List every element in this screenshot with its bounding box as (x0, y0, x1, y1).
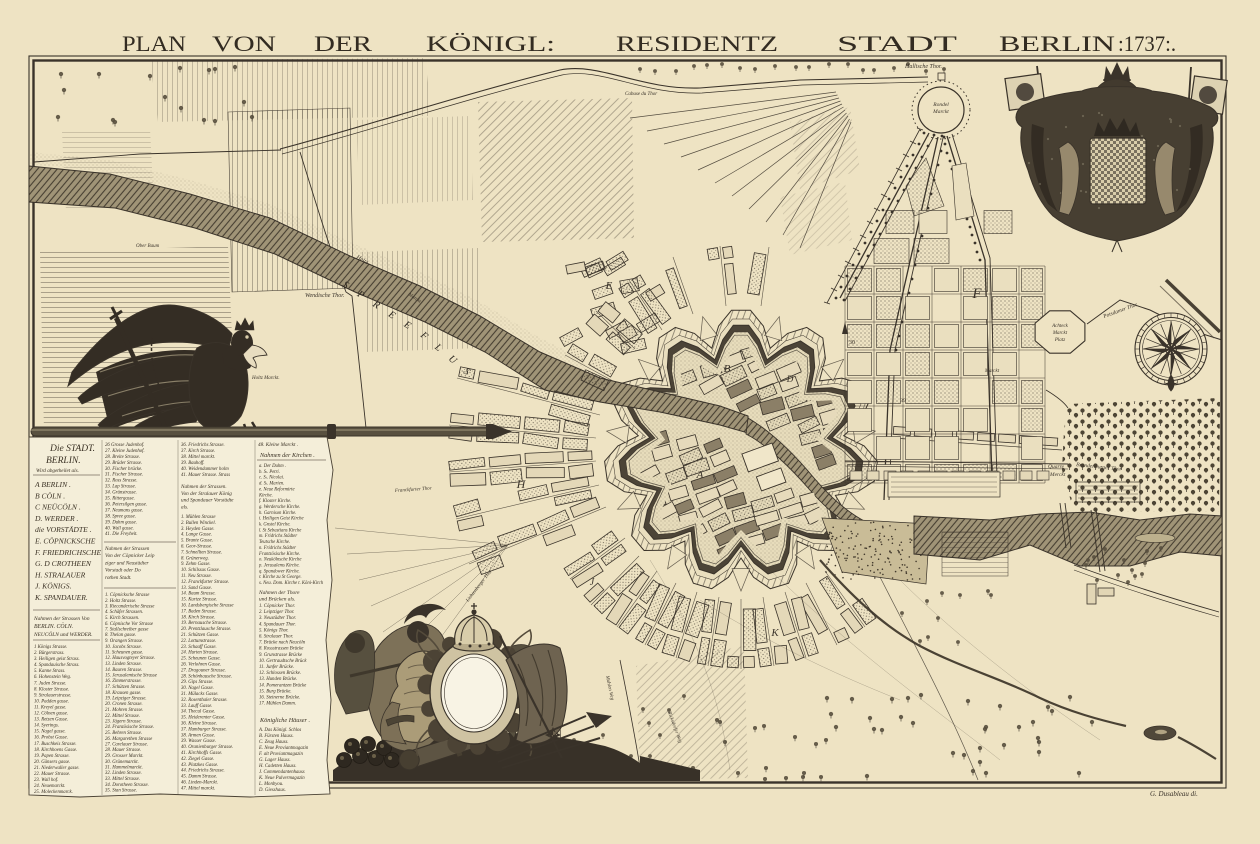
svg-text:NEUCÖLN und WERDER.: NEUCÖLN und WERDER. (33, 630, 93, 638)
svg-text:H. Cadetten Hauss.: H. Cadetten Hauss. (258, 764, 297, 769)
svg-text:3. Heiligen geist Strass.: 3. Heiligen geist Strass. (34, 657, 80, 662)
svg-text:19. Leipziger Strasse.: 19. Leipziger Strasse. (105, 697, 147, 702)
svg-text:2. Holtz Strasse.: 2. Holtz Strasse. (105, 599, 136, 604)
svg-text:8. Rossstrassen Brücke: 8. Rossstrassen Brücke (259, 647, 304, 652)
svg-text:6. Cöpnische Vor Strasse: 6. Cöpnische Vor Strasse (105, 622, 154, 627)
svg-text:ziger und Neustädter: ziger und Neustädter (104, 560, 149, 566)
svg-text:2. Bullen Winckel.: 2. Bullen Winckel. (181, 521, 216, 526)
svg-text:h. Garnison Kirche.: h. Garnison Kirche. (259, 511, 296, 516)
svg-text:G. Dusableau di.: G. Dusableau di. (1150, 790, 1198, 798)
svg-text:Von der Stralauer König: Von der Stralauer König (181, 491, 232, 497)
svg-text:RESIDENTZ: RESIDENTZ (616, 31, 778, 56)
svg-text:E. Neue Proviantmagazin: E. Neue Proviantmagazin (258, 746, 309, 751)
svg-text:16. Steinerne Brücke.: 16. Steinerne Brücke. (259, 696, 300, 701)
svg-text:m. Fridrichs Städter: m. Fridrichs Städter (259, 534, 297, 539)
svg-text:30: 30 (849, 340, 855, 346)
svg-text:BERLIN: BERLIN (999, 31, 1115, 56)
svg-text:31. Fischer Strasse.: 31. Fischer Strasse. (105, 473, 143, 478)
svg-text:K. SPANDAUER.: K. SPANDAUER. (34, 593, 88, 602)
svg-text:3. Riecanderische Strasse: 3. Riecanderische Strasse (105, 605, 155, 610)
svg-text:Die STADT.: Die STADT. (49, 444, 95, 454)
svg-text:G. Lager Hauss.: G. Lager Hauss. (259, 758, 291, 763)
svg-text:34. Thecul Gasse.: 34. Thecul Gasse. (181, 710, 215, 715)
svg-text:26. Margarethen Strasse: 26. Margarethen Strasse (105, 737, 153, 742)
svg-text:37. Hamburger Strasse.: 37. Hamburger Strasse. (181, 727, 227, 732)
svg-text:16. Probst Gasse.: 16. Probst Gasse. (34, 736, 68, 741)
svg-text:30. Fischer brücke.: 30. Fischer brücke. (105, 467, 142, 472)
svg-text:1. Cöpnicksche Strasse: 1. Cöpnicksche Strasse (105, 593, 150, 598)
svg-text:39. Wasser Gasse.: 39. Wasser Gasse. (181, 739, 216, 744)
svg-text:18. Krausen gasse.: 18. Krausen gasse. (105, 691, 142, 696)
svg-text:19. Bernausche Strasse.: 19. Bernausche Strasse. (181, 621, 227, 626)
svg-text:Platz: Platz (1054, 338, 1065, 343)
svg-text:25. Scheunen Gasse.: 25. Scheunen Gasse. (181, 657, 221, 662)
svg-text:27. Dragouner Strasse.: 27. Dragouner Strasse. (181, 668, 226, 673)
svg-text:23. Schaaff Gasse.: 23. Schaaff Gasse. (181, 645, 217, 650)
svg-text:34. Dorotheen Strasse.: 34. Dorotheen Strasse. (105, 783, 149, 788)
svg-text:41. Mauer Strasse. Strass: 41. Mauer Strasse. Strass (181, 473, 230, 478)
svg-text:36. Petersilgen gasse.: 36. Petersilgen gasse. (105, 503, 147, 508)
svg-text:VON: VON (212, 31, 276, 56)
svg-text:KÖNIGL:: KÖNIGL: (426, 31, 555, 56)
svg-text:48. Kleine Marckt .: 48. Kleine Marckt . (258, 441, 298, 448)
svg-text:Marckt: Marckt (984, 369, 1000, 374)
svg-text:2. Leiptziger Thor.: 2. Leiptziger Thor. (259, 610, 294, 615)
svg-text:44. Friedrichs Strasse.: 44. Friedrichs Strasse. (181, 769, 225, 774)
svg-text:9. Orangen Strasse.: 9. Orangen Strasse. (105, 639, 143, 644)
svg-text:38. Armen Gasse.: 38. Armen Gasse. (181, 733, 215, 738)
svg-text:21. Niederwaller gasse.: 21. Niederwaller gasse. (34, 766, 80, 771)
svg-text:35. Heiderenter Gasse.: 35. Heiderenter Gasse. (181, 716, 225, 721)
svg-text:Nahmen der Thore: Nahmen der Thore (258, 590, 300, 596)
svg-text:10. Schilssus Gasse.: 10. Schilssus Gasse. (181, 568, 220, 573)
svg-text:12. Schlossen Brücke.: 12. Schlossen Brücke. (259, 671, 301, 676)
svg-text:27. Carelauer Strasse.: 27. Carelauer Strasse. (105, 743, 148, 748)
svg-text:29. Brüder Strasse.: 29. Brüder Strasse. (105, 461, 142, 466)
svg-text:PLAN: PLAN (122, 31, 186, 56)
svg-text:37. Neumans gasse.: 37. Neumans gasse. (105, 508, 143, 513)
svg-text:6. Hohenstein Weg.: 6. Hohenstein Weg. (34, 675, 71, 680)
svg-text:C NEÜCÖLN .: C NEÜCÖLN . (35, 503, 81, 512)
svg-text:b. St. Petri.: b. St. Petri. (259, 470, 280, 475)
svg-text:29. Gips Strasse.: 29. Gips Strasse. (181, 680, 214, 685)
svg-text:30. Nagel Gasse.: 30. Nagel Gasse. (181, 686, 214, 691)
svg-text:20. Gänsers gasse.: 20. Gänsers gasse. (34, 760, 70, 765)
svg-text:42. Ziegel Gasse.: 42. Ziegel Gasse. (181, 757, 214, 762)
svg-text::1737:.: :1737:. (1118, 31, 1176, 56)
svg-text:B: B (724, 363, 731, 375)
svg-text:BERLIN. CÖLN.: BERLIN. CÖLN. (34, 622, 73, 630)
svg-text:9. Grunstrasse Brücke: 9. Grunstrasse Brücke (259, 653, 303, 658)
svg-text:40. Weidendammer holm: 40. Weidendammer holm (181, 467, 229, 472)
svg-text:22. Mittel Strasse.: 22. Mittel Strasse. (105, 714, 140, 719)
svg-text:Nahmen der Strassen Von: Nahmen der Strassen Von (33, 616, 90, 622)
svg-text:1. Mühlen Strasse: 1. Mühlen Strasse (181, 515, 216, 520)
svg-text:23. Jägern Strasse.: 23. Jägern Strasse. (105, 720, 142, 725)
svg-text:i. Heiligen Geist Kirche: i. Heiligen Geist Kirche (259, 517, 304, 522)
svg-text:Holtz Marckt.: Holtz Marckt. (251, 376, 280, 381)
svg-text:K: K (770, 627, 779, 639)
svg-text:A: A (696, 469, 704, 481)
svg-text:Vorstadt oder Do: Vorstadt oder Do (105, 568, 141, 574)
svg-text:25. Moleckenmarck.: 25. Moleckenmarck. (34, 790, 73, 795)
svg-text:J. KÖNIGS.: J. KÖNIGS. (35, 582, 72, 591)
svg-text:30. Grünemarckt.: 30. Grünemarckt. (105, 760, 139, 765)
svg-text:1. Cöpnicker Thor.: 1. Cöpnicker Thor. (259, 604, 295, 609)
svg-text:46. Linden-Marckt.: 46. Linden-Marckt. (181, 781, 218, 786)
svg-text:19. Papen Strasse.: 19. Papen Strasse. (34, 754, 70, 759)
svg-text:28. Mauer Strasse.: 28. Mauer Strasse. (105, 748, 141, 753)
svg-text:Wird abgetheilet als.: Wird abgetheilet als. (36, 468, 79, 474)
svg-text:D: D (786, 374, 794, 384)
svg-text:18. Kirchhoens Gasse.: 18. Kirchhoens Gasse. (34, 748, 77, 753)
svg-text:Königliche Häuser .: Königliche Häuser . (259, 717, 310, 724)
svg-text:K. Neue Pulvermagazin: K. Neue Pulvermagazin (258, 776, 305, 781)
svg-text:34. Grünstrasse.: 34. Grünstrasse. (105, 491, 137, 496)
svg-text:36. Friedrichs Strasse.: 36. Friedrichs Strasse. (181, 443, 225, 448)
svg-text:Teutsche Kirche.: Teutsche Kirche. (259, 540, 290, 545)
svg-text:38. Spree gasse.: 38. Spree gasse. (105, 514, 136, 519)
svg-text:16. Landsbergische Strasse: 16. Landsbergische Strasse (181, 604, 234, 609)
svg-text:15. Burg Brücke.: 15. Burg Brücke. (259, 689, 292, 694)
svg-text:25. Behren Strasse.: 25. Behren Strasse. (105, 731, 142, 736)
svg-text:Frantzösische Kirche.: Frantzösische Kirche. (258, 552, 300, 557)
svg-text:Wendische Thor.: Wendische Thor. (305, 293, 344, 299)
svg-text:7. Stallschreiber gasse: 7. Stallschreiber gasse (105, 628, 149, 633)
svg-text:13. Hunden Brücke.: 13. Hunden Brücke. (259, 677, 297, 682)
svg-text:11. Neu Strasse.: 11. Neu Strasse. (181, 574, 212, 579)
svg-text:17. Schützen Strasse.: 17. Schützen Strasse. (105, 685, 146, 690)
svg-text:A BERLIN .: A BERLIN . (34, 480, 71, 489)
svg-text:H. STRALAUER: H. STRALAUER (34, 570, 86, 579)
svg-text:B. Fürsten Hauss.: B. Fürsten Hauss. (259, 734, 294, 739)
svg-text:33. Lap Strasse.: 33. Lap Strasse. (105, 485, 136, 490)
svg-text:21. Mohren Strasse.: 21. Mohren Strasse. (105, 708, 143, 713)
svg-text:H: H (516, 477, 527, 491)
svg-text:18. Kirch Strasse.: 18. Kirch Strasse. (181, 615, 215, 620)
svg-text:20. Cronen Strasse.: 20. Cronen Strasse. (105, 702, 143, 707)
svg-text:24. Hurten Strasse.: 24. Hurten Strasse. (181, 651, 218, 656)
svg-text:35. Rittergasse.: 35. Rittergasse. (105, 497, 135, 502)
svg-text:16. Zimmerstrasse.: 16. Zimmerstrasse. (105, 679, 142, 684)
svg-text:11. Junfer Brücke.: 11. Junfer Brücke. (259, 665, 294, 670)
svg-text:Marckt: Marckt (1052, 331, 1068, 336)
svg-text:BERLIN.: BERLIN. (46, 456, 81, 466)
svg-text:29. Grosser Marckt.: 29. Grosser Marckt. (105, 754, 144, 759)
svg-text:37. Kirch Strasse.: 37. Kirch Strasse. (181, 449, 215, 454)
svg-text:28. Breite Strasse.: 28. Breite Strasse. (105, 455, 140, 460)
svg-text:p. Jerusalems Kirche.: p. Jerusalems Kirche. (258, 564, 300, 569)
svg-text:7. Brücke nach Neucöln: 7. Brücke nach Neucöln (259, 641, 306, 646)
svg-text:27. Kleine Judenhof.: 27. Kleine Judenhof. (105, 449, 145, 454)
svg-text:6. Geor-Strasse.: 6. Geor-Strasse. (181, 545, 212, 550)
svg-text:41. Kirchhoffs Gasse.: 41. Kirchhoffs Gasse. (181, 751, 222, 756)
svg-text:36. Kleine Strasse.: 36. Kleine Strasse. (181, 722, 217, 727)
svg-text:die VORSTÄDTE .: die VORSTÄDTE . (35, 525, 92, 534)
svg-text:E: E (605, 280, 613, 292)
svg-text:4. Lange Gasse.: 4. Lange Gasse. (181, 533, 212, 538)
svg-text:a. Der Duhm .: a. Der Duhm . (259, 464, 286, 469)
svg-text:33. Mittel Strasse.: 33. Mittel Strasse. (105, 777, 140, 782)
svg-text:DER: DER (314, 31, 372, 56)
svg-text:Nahmen der Kirchen .: Nahmen der Kirchen . (259, 452, 315, 459)
svg-text:3. Neustädter Thor.: 3. Neustädter Thor. (259, 616, 296, 621)
svg-text:12. Franckfurter Strasse.: 12. Franckfurter Strasse. (181, 580, 229, 585)
svg-text:32. Ross Strasse.: 32. Ross Strasse. (105, 479, 138, 484)
svg-text:c. St. Nicolai.: c. St. Nicolai. (259, 476, 284, 481)
svg-text:39. Duhm gasse.: 39. Duhm gasse. (105, 520, 137, 525)
svg-text:Nahmen der Strassen.: Nahmen der Strassen. (180, 484, 227, 490)
svg-text:Achteck: Achteck (1051, 324, 1069, 329)
svg-text:13. Retzen Gasse.: 13. Retzen Gasse. (34, 718, 68, 723)
svg-text:5. Königs Thor.: 5. Königs Thor. (259, 628, 289, 633)
svg-text:26. Verlohren Gasse.: 26. Verlohren Gasse. (181, 663, 221, 668)
svg-text:L. Monbyou.: L. Monbyou. (258, 782, 283, 787)
svg-text:o. Neukölnsche Kirche: o. Neukölnsche Kirche (259, 558, 301, 563)
svg-text:Nahmen der Strassen: Nahmen der Strassen (104, 546, 150, 552)
svg-text:F. alt Proviantmagazin: F. alt Proviantmagazin (258, 752, 303, 757)
svg-text:39: 39 (900, 398, 906, 404)
svg-text:40. Oranienburger Strasse.: 40. Oranienburger Strasse. (181, 745, 233, 750)
svg-text:3. Heyden Gasse.: 3. Heyden Gasse. (181, 527, 215, 532)
svg-text:33. Lauff Gasse.: 33. Lauff Gasse. (181, 704, 212, 709)
svg-text:10. Gertraudtsche Brück: 10. Gertraudtsche Brück (259, 659, 307, 664)
svg-text:14. Baum Strasse.: 14. Baum Strasse. (181, 592, 216, 597)
svg-text:14. Pomerantzen Brücke: 14. Pomerantzen Brücke (259, 683, 307, 688)
svg-text:Kirche.: Kirche. (258, 493, 273, 498)
svg-text:r. Kirche zu St George.: r. Kirche zu St George. (259, 575, 302, 580)
svg-text:e. Neue Reformirte: e. Neue Reformirte (259, 487, 295, 492)
svg-text:13. Sand Gasse.: 13. Sand Gasse. (181, 586, 212, 591)
svg-text:8. Grünerweg.: 8. Grünerweg. (181, 556, 209, 561)
svg-text:14. Bauren Strasse.: 14. Bauren Strasse. (105, 668, 142, 673)
svg-text:24. Neuemarckt.: 24. Neuemarckt. (34, 784, 65, 789)
svg-text:4. Spandauische Strass.: 4. Spandauische Strass. (34, 663, 80, 668)
svg-text:B CÖLN .: B CÖLN . (35, 491, 65, 500)
svg-text:D. WERDER .: D. WERDER . (34, 514, 79, 523)
svg-text:43. Platzkes Gasse.: 43. Platzkes Gasse. (181, 763, 218, 768)
svg-text:n. Fridrichs Städter: n. Fridrichs Städter (259, 546, 296, 551)
svg-text:5. Kanne Strass.: 5. Kanne Strass. (34, 669, 65, 674)
svg-text:8. Thelan gasse.: 8. Thelan gasse. (105, 633, 136, 638)
svg-text:Marckt: Marckt (932, 109, 949, 115)
svg-text:32. Rosenthaler Strasse.: 32. Rosenthaler Strasse. (181, 698, 228, 703)
svg-text:15. Kurtze Strasse.: 15. Kurtze Strasse. (181, 598, 217, 603)
svg-text:5. Brante Gasse.: 5. Brante Gasse. (181, 539, 213, 544)
svg-text:4. Schäfer Strassen.: 4. Schäfer Strassen. (105, 610, 143, 615)
svg-text:15. Jerusalemische Strasse: 15. Jerusalemische Strasse (105, 674, 158, 679)
svg-text:k. Gnstel Kirche.: k. Gnstel Kirche. (259, 523, 291, 528)
svg-text:als.: als. (181, 504, 188, 510)
svg-text:35. Stan Strasse.: 35. Stan Strasse. (105, 789, 137, 794)
svg-text:13. Linden Strasse.: 13. Linden Strasse. (105, 662, 142, 667)
svg-text:4. Spandauer Thor.: 4. Spandauer Thor. (259, 622, 296, 627)
svg-text:32. Linden Strasse.: 32. Linden Strasse. (105, 771, 142, 776)
svg-text:12. Cölnen gasse.: 12. Cölnen gasse. (34, 712, 68, 717)
svg-text:31. Mülacks Gasse.: 31. Mülacks Gasse. (181, 692, 219, 697)
svg-text:15. Nagel gasse.: 15. Nagel gasse. (34, 730, 66, 735)
svg-text:2. Bürgerstrass.: 2. Bürgerstrass. (34, 651, 65, 656)
svg-text:7. Schnellten Strasse.: 7. Schnellten Strasse. (181, 550, 222, 555)
svg-text:und Brücken als.: und Brücken als. (259, 597, 295, 603)
svg-text:Ober Baum: Ober Baum (136, 244, 160, 249)
svg-text:s. Neu. Dom. Kirche t. Köni-Ki: s. Neu. Dom. Kirche t. Köni-Kirch (259, 581, 324, 586)
svg-text:39. Bauhoff.: 39. Bauhoff. (181, 461, 205, 466)
svg-text:10. Padden gasse.: 10. Padden gasse. (34, 699, 69, 704)
svg-text:Cabuse du Thor: Cabuse du Thor (625, 92, 657, 97)
svg-text:rothen Stadt.: rothen Stadt. (105, 575, 132, 581)
svg-text:17. Buschkeis Strasse.: 17. Buschkeis Strasse. (34, 742, 77, 747)
svg-text:17. Mühlen Damm.: 17. Mühlen Damm. (259, 702, 296, 707)
svg-text:21. Schützen Gasse.: 21. Schützen Gasse. (181, 633, 219, 638)
svg-text:20. Prentzlausche Strasse.: 20. Prentzlausche Strasse. (181, 627, 231, 632)
svg-text:d. St. Marien.: d. St. Marien. (259, 482, 284, 487)
svg-text:26 Grosse Judenhof.: 26 Grosse Judenhof. (105, 443, 144, 448)
svg-text:47. Mittel marckt.: 47. Mittel marckt. (181, 786, 215, 791)
svg-text:J. Commendantenhauss: J. Commendantenhauss (259, 770, 305, 775)
svg-text:45. Damm Strasse.: 45. Damm Strasse. (181, 775, 217, 780)
svg-text:22. Mauer Strasse.: 22. Mauer Strasse. (34, 772, 70, 777)
svg-text:l. St Sebastians Kirche: l. St Sebastians Kirche (259, 528, 301, 533)
svg-text:Von der Cöpnicker Leip: Von der Cöpnicker Leip (105, 553, 155, 559)
svg-text:11. Scheunen gasse.: 11. Scheunen gasse. (105, 651, 143, 656)
svg-text:STADT: STADT (837, 31, 958, 56)
svg-text:6. Stralauer Thor.: 6. Stralauer Thor. (259, 635, 293, 640)
svg-text:17. Baden Strasse.: 17. Baden Strasse. (181, 609, 217, 614)
svg-text:12. Hausvogteyer Strasse.: 12. Hausvogteyer Strasse. (105, 656, 155, 661)
svg-text:10. Jacobs Strasse.: 10. Jacobs Strasse. (105, 645, 142, 650)
svg-text:F: F (971, 286, 982, 302)
svg-text:Hallische Thor.: Hallische Thor. (904, 64, 942, 70)
svg-text:E. CÖPNICKSCHE: E. CÖPNICKSCHE (34, 537, 96, 546)
svg-text:F. FRIEDRICHSCHE: F. FRIEDRICHSCHE (34, 548, 101, 557)
svg-text:5. Kirch Strassen.: 5. Kirch Strassen. (105, 616, 139, 621)
svg-text:D. Giesshaus.: D. Giesshaus. (258, 788, 286, 793)
svg-text:24. Französische Strasse.: 24. Französische Strasse. (105, 725, 154, 730)
svg-text:40. Wall gasse.: 40. Wall gasse. (105, 526, 134, 531)
svg-text:G. D CROTHEEN: G. D CROTHEEN (35, 559, 92, 568)
svg-text:14. Syerings.: 14. Syerings. (34, 724, 59, 729)
svg-text:28. Schönhausche Strasse.: 28. Schönhausche Strasse. (181, 674, 232, 679)
svg-text:A. Das Königl. Schlos: A. Das Königl. Schlos (258, 728, 301, 733)
svg-text:9. Zehm Gasse.: 9. Zehm Gasse. (181, 562, 211, 567)
svg-text:und Spandauer Vorstädte: und Spandauer Vorstädte (181, 498, 234, 504)
svg-text:31. Hammelmarckt.: 31. Hammelmarckt. (105, 766, 143, 771)
svg-text:7. Juden Strasse.: 7. Juden Strasse. (34, 681, 67, 686)
svg-text:g. Werdersche Kirche.: g. Werdersche Kirche. (259, 505, 300, 510)
svg-text:8. Kloster Strasse.: 8. Kloster Strasse. (34, 687, 69, 692)
svg-text:J: J (590, 577, 595, 588)
svg-text:1 Königs Strasse.: 1 Königs Strasse. (34, 645, 67, 650)
svg-text:38. Mittel marckt.: 38. Mittel marckt. (181, 455, 215, 460)
svg-text:f. Kloster Kirche.: f. Kloster Kirche. (259, 499, 291, 504)
svg-text:23. Wall hof.: 23. Wall hof. (34, 778, 58, 783)
svg-text:11. Kreyel gasse.: 11. Kreyel gasse. (34, 706, 67, 711)
svg-text:Rondel: Rondel (932, 102, 949, 108)
svg-text:C. Zeug Hauss.: C. Zeug Hauss. (259, 740, 289, 745)
svg-text:22. Lottumstrasse.: 22. Lottumstrasse. (181, 639, 216, 644)
svg-text:q. Spandower Kirche.: q. Spandower Kirche. (259, 569, 300, 574)
svg-text:9. Stralauerstrasse.: 9. Stralauerstrasse. (34, 693, 71, 698)
svg-text:41. Die Freyheit.: 41. Die Freyheit. (105, 532, 138, 537)
